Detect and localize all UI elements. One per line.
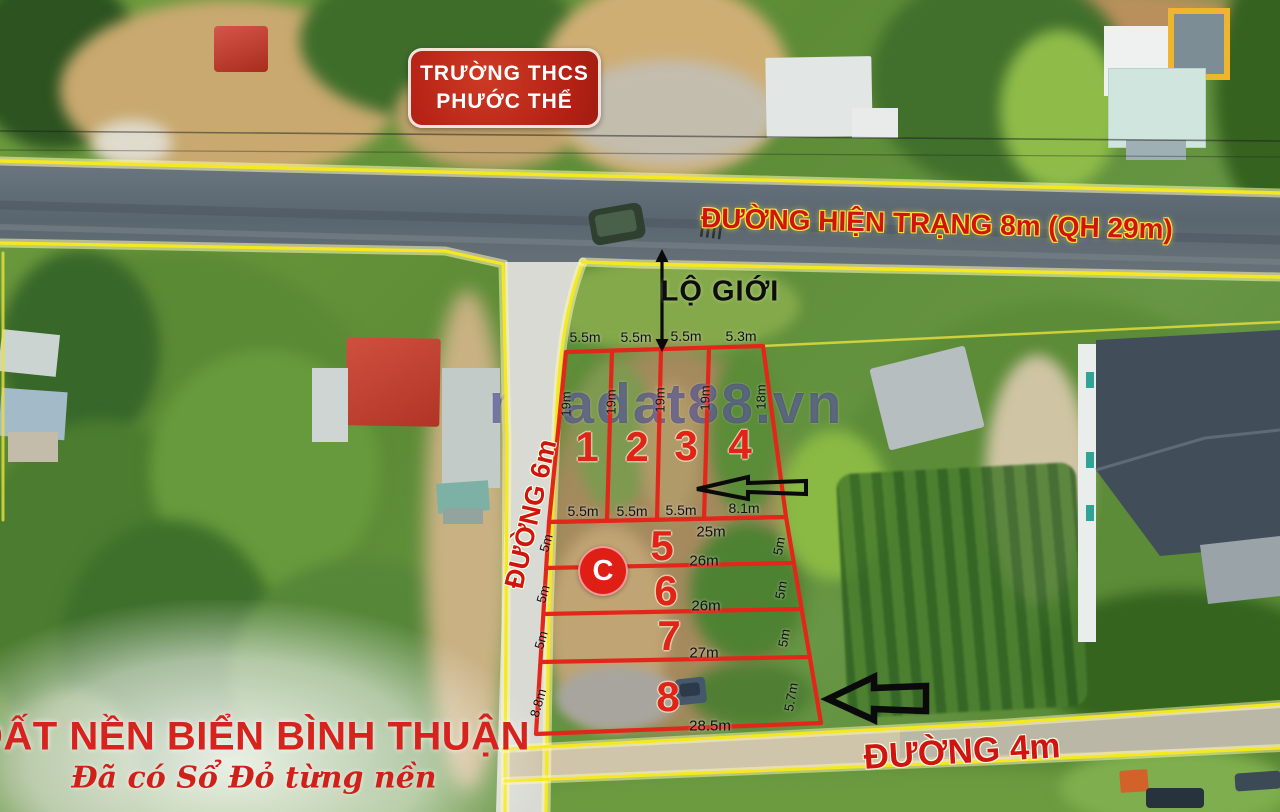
main-road-label: ĐƯỜNG HIỆN TRẠNG 8m (QH 29m) <box>701 202 1173 246</box>
dim-label: 28.5m <box>689 718 731 735</box>
dim-label: 5m <box>775 628 793 648</box>
school-sign-line1: TRƯỜNG THCS <box>420 60 589 88</box>
annotation-layer: TRƯỜNG THCS PHƯỚC THỂ ĐƯỜNG HIỆN TRẠNG 8… <box>0 0 1280 812</box>
school-sign-line2: PHƯỚC THỂ <box>436 88 573 116</box>
plot-number: 3 <box>674 422 697 470</box>
dim-label: 19m <box>604 389 619 414</box>
plot-number: 5 <box>650 522 673 570</box>
dim-label: 19m <box>698 385 713 410</box>
dim-label: 5.5m <box>567 503 598 519</box>
plot-number: 1 <box>575 423 598 471</box>
marker-c-badge: C <box>578 546 628 596</box>
footer-headline: ĐẤT NỀN BIỂN BÌNH THUẬN <box>0 715 530 760</box>
dim-label: 5m <box>536 532 555 553</box>
dim-label: 5.5m <box>616 503 647 519</box>
bottom-road-label: ĐƯỜNG 4m <box>862 726 1061 778</box>
dim-label: 5m <box>533 583 552 604</box>
aerial-plot-map: nhadat88.vn <box>0 0 1280 812</box>
dim-label: 5m <box>531 629 550 650</box>
plot-number: 4 <box>728 421 751 469</box>
dim-label: 5m <box>772 580 790 600</box>
dim-label: 5.5m <box>620 329 651 345</box>
dim-label: 19m <box>559 391 574 416</box>
dim-label: 5.5m <box>670 328 701 344</box>
dim-label: 5.5m <box>569 329 600 345</box>
dim-label: 19m <box>653 387 668 412</box>
dim-label: 26m <box>691 598 720 615</box>
dim-label: 5.7m <box>781 681 801 712</box>
side-road-label: ĐƯỜNG 6m <box>499 436 563 591</box>
plot-number: 2 <box>625 423 648 471</box>
plot-number: 8 <box>656 673 679 721</box>
dim-label: 27m <box>689 645 718 662</box>
marker-c-label: C <box>593 555 614 588</box>
dim-label: 25m <box>696 524 725 541</box>
footer-tagline: Đã có Sổ Đỏ từng nền <box>71 761 436 796</box>
dim-label: 18m <box>754 384 769 409</box>
dim-label: 26m <box>689 553 718 570</box>
plot-number: 7 <box>657 612 680 660</box>
plot-number: 6 <box>654 567 677 615</box>
dim-label: 8.8m <box>527 687 549 719</box>
dim-label: 5.3m <box>725 328 756 344</box>
dim-label: 5m <box>770 536 788 556</box>
dim-label: 8.1m <box>728 500 759 516</box>
school-sign: TRƯỜNG THCS PHƯỚC THỂ <box>408 48 601 128</box>
dim-label: 5.5m <box>665 502 696 518</box>
setback-label: LỘ GIỚI <box>661 276 780 309</box>
